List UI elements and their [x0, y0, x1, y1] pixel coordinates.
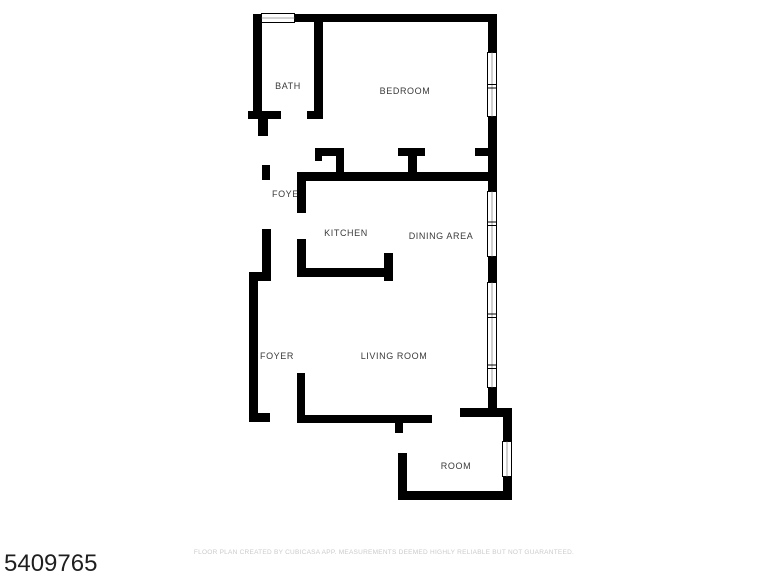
room-label-foyer-lower: FOYER: [260, 351, 294, 361]
wall-segment: [258, 119, 268, 136]
floor-plan-page: BATHBEDROOMFOYERKITCHENDINING AREAFOYERL…: [0, 0, 768, 576]
wall-segment: [297, 172, 306, 213]
wall-segment: [384, 253, 393, 281]
room-label-room: ROOM: [441, 461, 471, 471]
room-label-living-room: LIVING ROOM: [361, 351, 428, 361]
wall-segment: [297, 268, 393, 277]
room-label-bath: BATH: [275, 81, 301, 91]
wall-segment: [398, 491, 512, 500]
wall-segment: [249, 413, 270, 422]
wall-segment: [253, 14, 262, 112]
wall-segment: [408, 148, 417, 175]
wall-segment: [249, 272, 258, 422]
wall-segment: [297, 172, 491, 181]
wall-segment: [314, 14, 323, 117]
wall-segment: [262, 229, 271, 276]
wall-segment: [262, 165, 270, 180]
room-label-dining-area: DINING AREA: [409, 231, 474, 241]
wall-segment: [315, 148, 322, 161]
wall-segment: [336, 148, 344, 175]
room-label-bedroom: BEDROOM: [380, 86, 431, 96]
wall-segment: [248, 111, 281, 119]
wall-segment: [475, 148, 490, 156]
room-label-kitchen: KITCHEN: [324, 228, 368, 238]
disclaimer-text: FLOOR PLAN CREATED BY CUBICASA APP. MEAS…: [0, 549, 768, 556]
floor-plan-svg: BATHBEDROOMFOYERKITCHENDINING AREAFOYERL…: [0, 0, 768, 576]
wall-segment: [297, 415, 432, 423]
wall-segment: [395, 423, 403, 433]
